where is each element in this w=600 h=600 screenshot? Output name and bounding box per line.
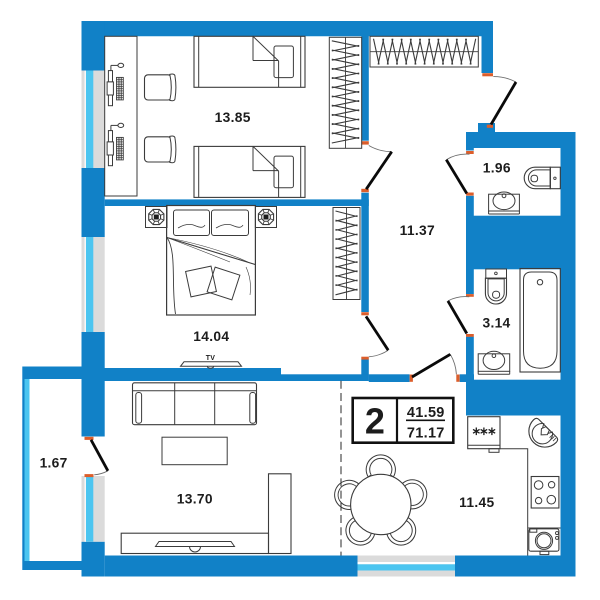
svg-text:14.04: 14.04 [193, 329, 229, 344]
svg-text:1.67: 1.67 [40, 455, 68, 470]
svg-text:13.70: 13.70 [177, 491, 213, 506]
svg-text:3.14: 3.14 [482, 315, 510, 330]
svg-text:11.37: 11.37 [400, 223, 435, 238]
svg-text:71.17: 71.17 [407, 425, 445, 441]
svg-text:2: 2 [365, 400, 385, 441]
svg-text:11.45: 11.45 [459, 495, 494, 510]
svg-text:13.85: 13.85 [215, 110, 251, 125]
svg-text:1.96: 1.96 [483, 160, 511, 175]
svg-text:TV: TV [206, 355, 216, 362]
svg-text:41.59: 41.59 [407, 405, 445, 421]
